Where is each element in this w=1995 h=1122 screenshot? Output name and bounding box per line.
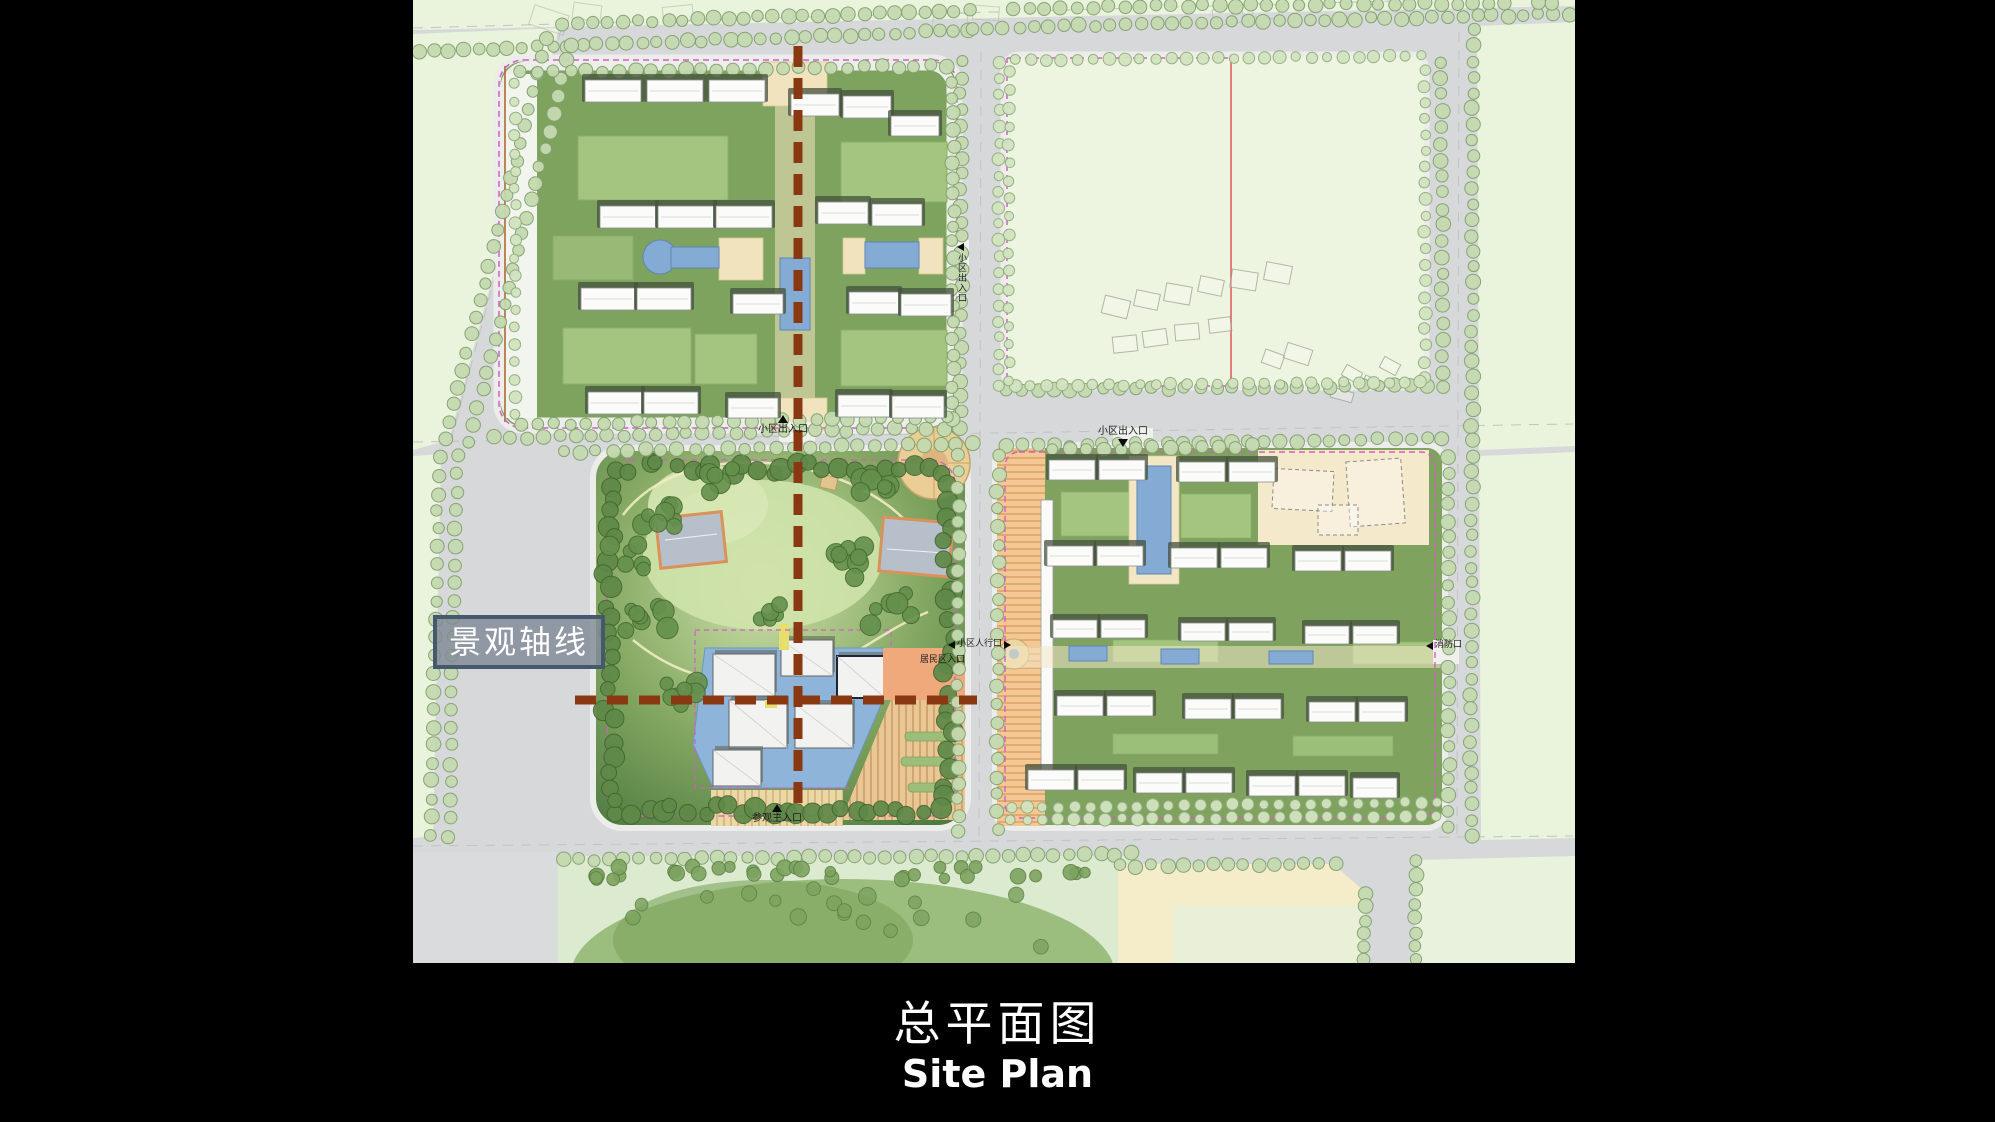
entrance-label-community-north: 小区出入口 bbox=[758, 415, 808, 435]
arrow-left-icon bbox=[948, 641, 955, 649]
entrance-text: 小区出入口 bbox=[758, 425, 808, 435]
arrow-up-icon bbox=[772, 804, 782, 812]
entrance-text: 参观主入口 bbox=[752, 814, 802, 824]
entrance-label-community-south: 小区出入口 bbox=[1098, 427, 1148, 447]
slide-canvas: 景观轴线 小区出入口 小区出入口 小区出入口 小区人行口 居民区入口 参观主入口… bbox=[0, 0, 1995, 1122]
entrance-text: 居民区入口 bbox=[920, 656, 965, 665]
entrance-label-main-visitor: 参观主入口 bbox=[752, 804, 802, 824]
site-plan-graphic bbox=[413, 0, 1575, 963]
page-title-zh: 总平面图 bbox=[0, 985, 1995, 1054]
arrow-left-icon bbox=[1426, 642, 1433, 650]
arrow-left-icon bbox=[957, 243, 964, 251]
page-title-en: Site Plan bbox=[0, 1052, 1995, 1096]
arrow-up-icon bbox=[778, 415, 788, 423]
entrance-text: 小区出入口 bbox=[956, 253, 965, 303]
parcel-park bbox=[593, 427, 970, 828]
entrance-label-pedestrian: 小区人行口 bbox=[948, 640, 1011, 649]
parcel-topright-empty bbox=[1003, 54, 1427, 403]
arrow-right-icon bbox=[1004, 641, 1011, 649]
entrance-label-resident: 居民区入口 bbox=[920, 656, 965, 665]
entrance-text: 小区出入口 bbox=[1098, 427, 1148, 437]
entrance-text: 消防口 bbox=[1435, 641, 1462, 650]
entrance-label-community-east: 小区出入口 bbox=[956, 243, 965, 303]
entrance-label-fire: 消防口 bbox=[1426, 641, 1462, 650]
arrow-down-icon bbox=[1118, 439, 1128, 447]
landscape-axis-label: 景观轴线 bbox=[433, 615, 605, 669]
entrance-text: 小区人行口 bbox=[957, 640, 1002, 649]
